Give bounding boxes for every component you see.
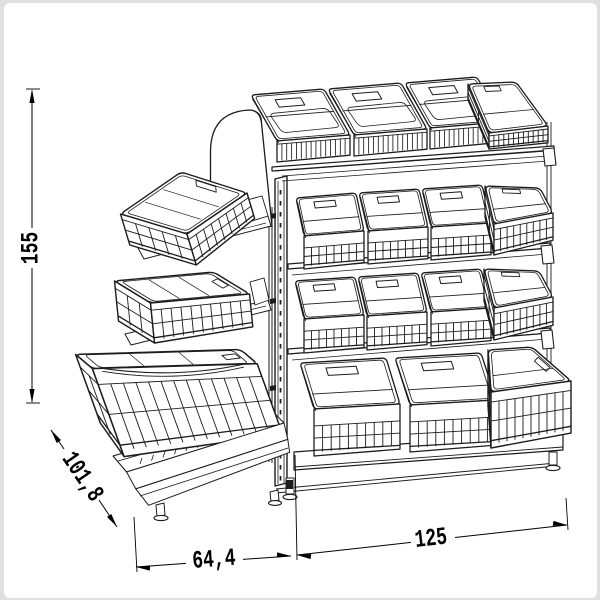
svg-text:101,8: 101,8: [55, 447, 109, 508]
svg-text:155: 155: [17, 232, 46, 264]
svg-text:64,4: 64,4: [191, 544, 236, 576]
svg-text:125: 125: [413, 523, 448, 555]
